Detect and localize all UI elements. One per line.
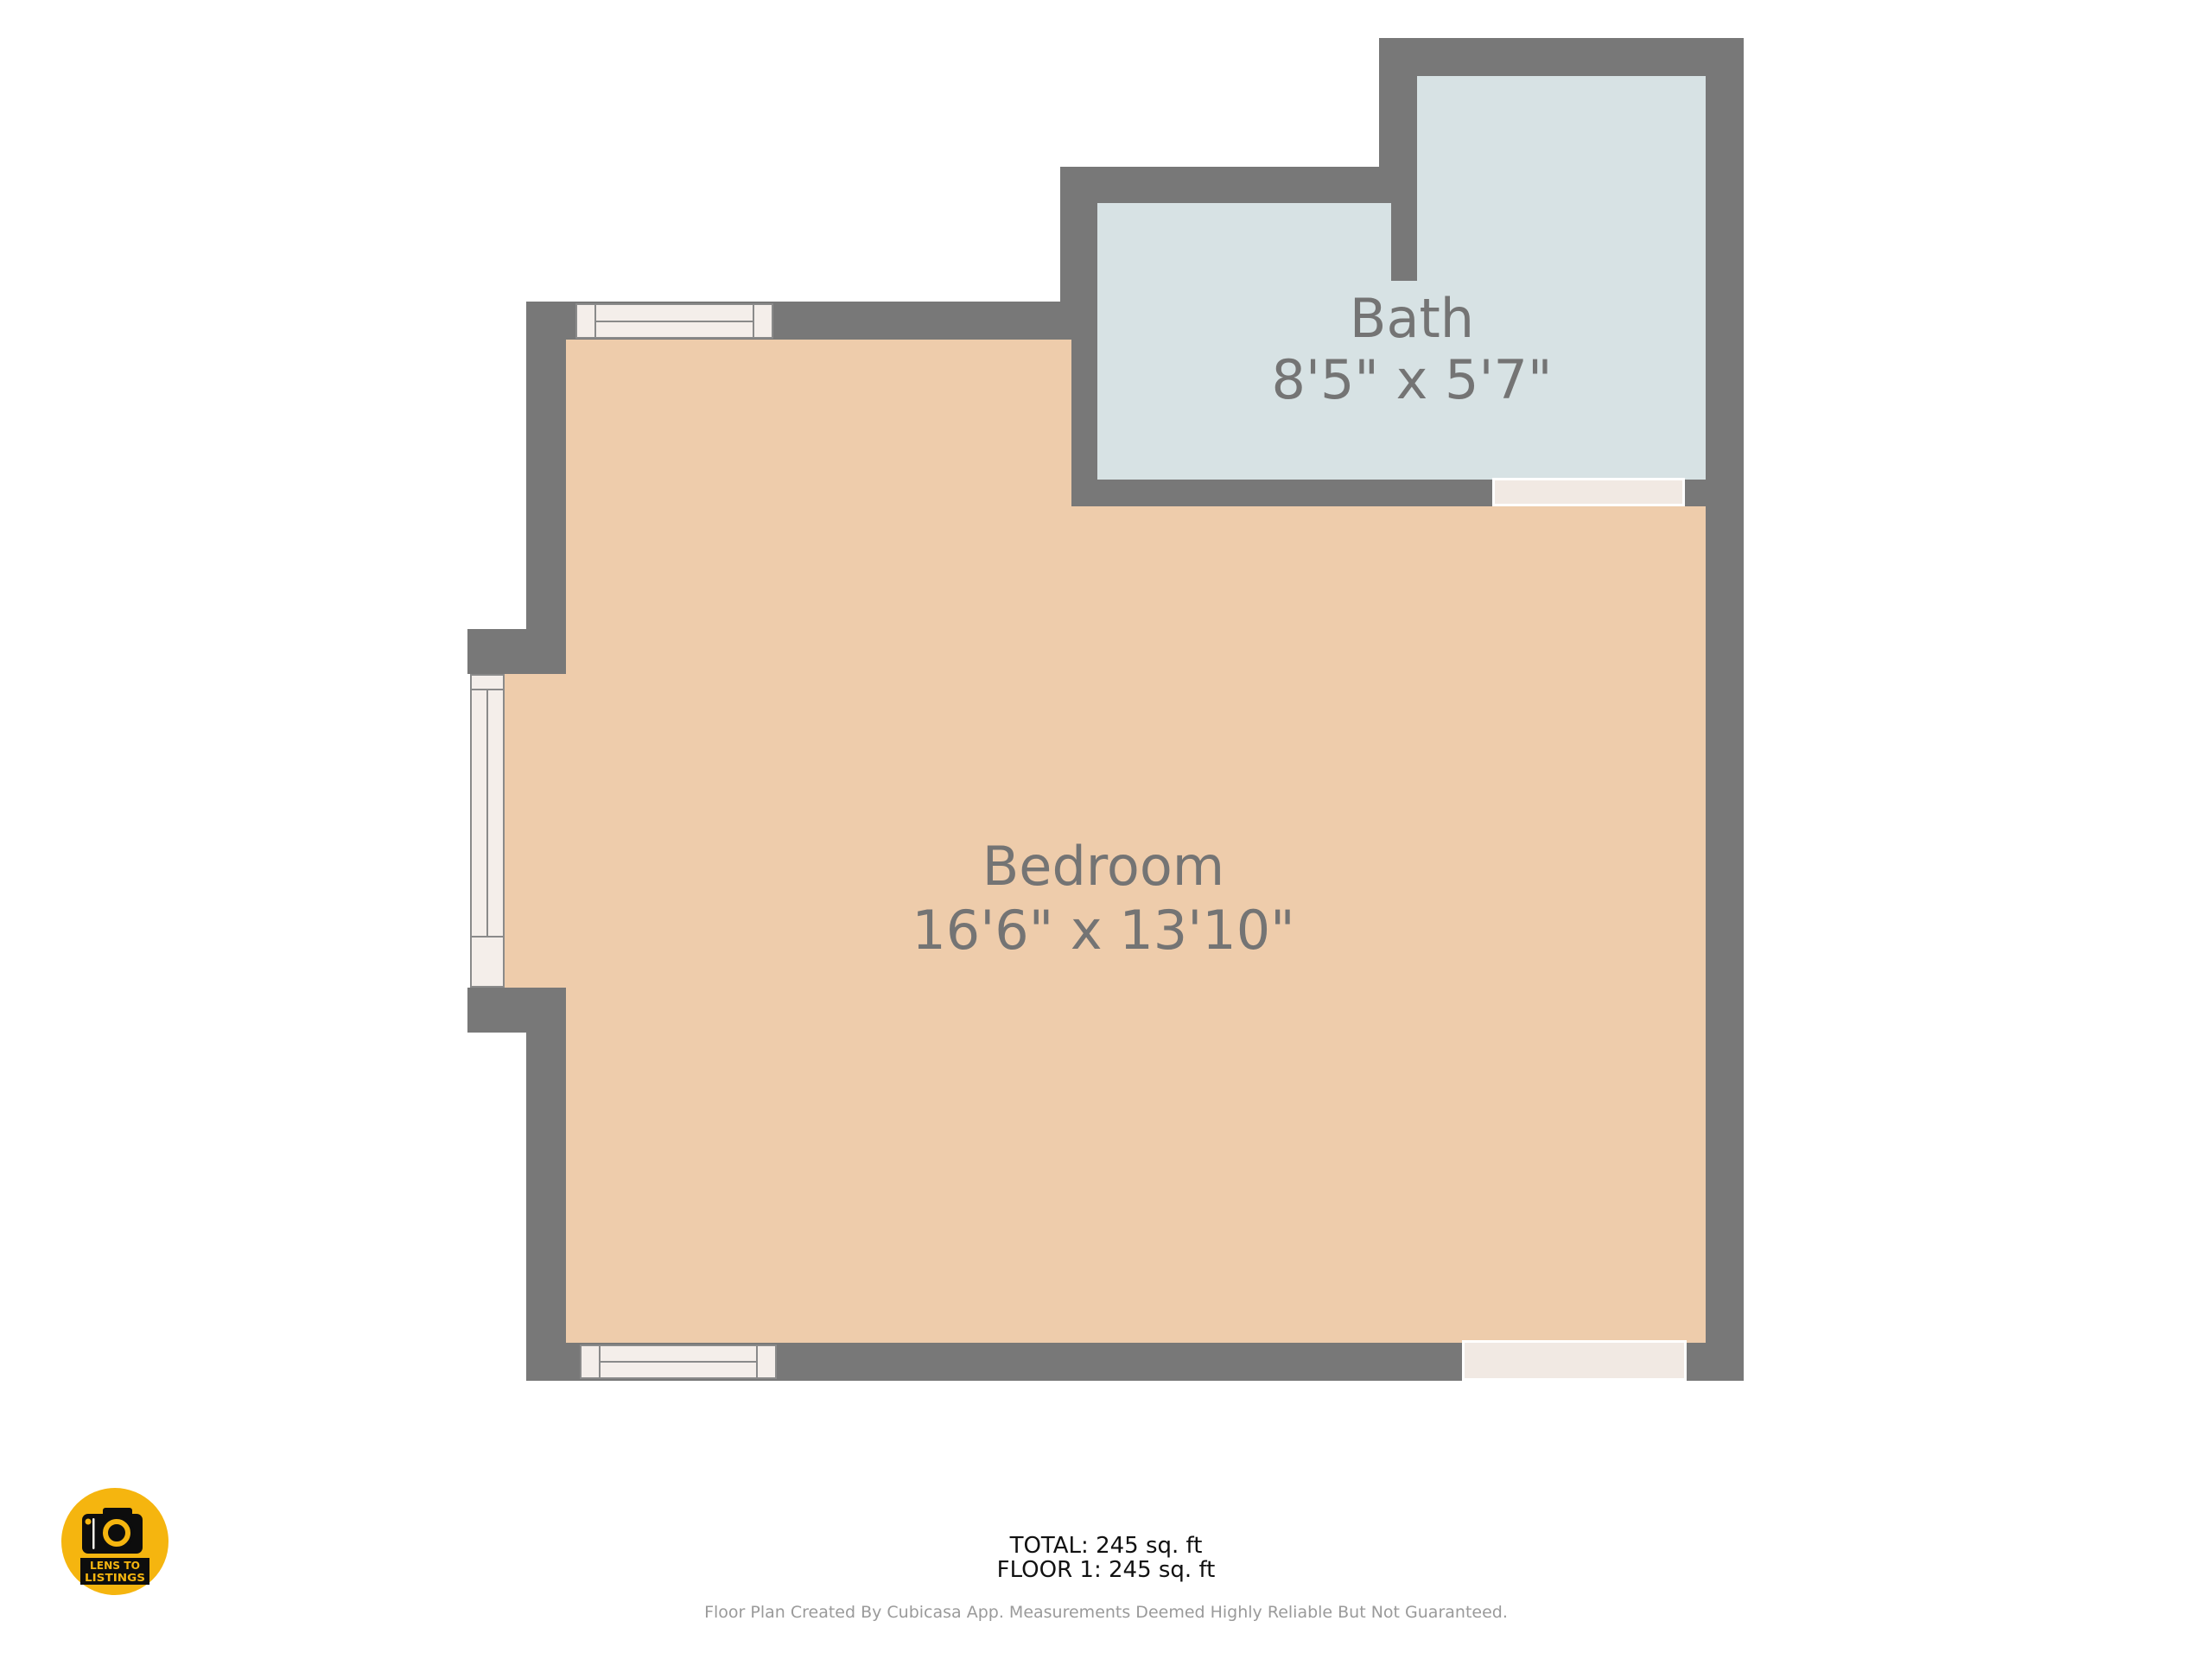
window-bottom	[580, 1344, 777, 1379]
room-dimensions: 16'6" x 13'10"	[912, 899, 1294, 963]
window-frame-line	[486, 689, 488, 938]
area-summary: TOTAL: 245 sq. ft FLOOR 1: 245 sq. ft	[0, 1534, 2212, 1582]
wall-bath-top	[1379, 38, 1744, 76]
floor1-area-text: FLOOR 1: 245 sq. ft	[0, 1558, 2212, 1582]
floor-plan: Bath 8'5" x 5'7" Bedroom 16'6" x 13'10" …	[0, 0, 2212, 1659]
wall-bay-jut-top	[467, 629, 566, 674]
window-frame-line	[594, 321, 754, 322]
lens-to-listings-logo: LENS TO LISTINGS	[61, 1488, 168, 1595]
window-top	[575, 303, 773, 339]
room-dimensions: 8'5" x 5'7"	[1271, 349, 1552, 410]
wall-bath-left-exterior	[1060, 167, 1097, 302]
bath-label: Bath 8'5" x 5'7"	[1271, 288, 1552, 410]
disclaimer-text: Floor Plan Created By Cubicasa App. Meas…	[0, 1603, 2212, 1622]
wall-left-lower	[526, 988, 566, 1381]
bath-floor-upper	[1417, 76, 1706, 203]
window-bay	[470, 674, 505, 988]
bath-door-opening	[1492, 478, 1685, 506]
window-frame-line	[599, 1361, 758, 1363]
logo-text-line1: LENS TO	[90, 1560, 140, 1572]
bedroom-label: Bedroom 16'6" x 13'10"	[912, 835, 1294, 963]
wall-right	[1706, 38, 1744, 1381]
wall-left-upper	[526, 302, 566, 674]
bedroom-door-opening	[1462, 1340, 1687, 1381]
room-name: Bedroom	[912, 835, 1294, 899]
total-area-text: TOTAL: 245 sq. ft	[0, 1534, 2212, 1558]
wall-bath-tall-left	[1379, 38, 1417, 203]
logo-text-line2: LISTINGS	[85, 1572, 145, 1584]
bedroom-floor-bay	[505, 674, 566, 988]
camera-icon: LENS TO LISTINGS	[61, 1488, 168, 1595]
wall-bath-left-top	[1060, 167, 1379, 203]
room-name: Bath	[1271, 288, 1552, 349]
wall-bath-stub	[1391, 203, 1417, 281]
